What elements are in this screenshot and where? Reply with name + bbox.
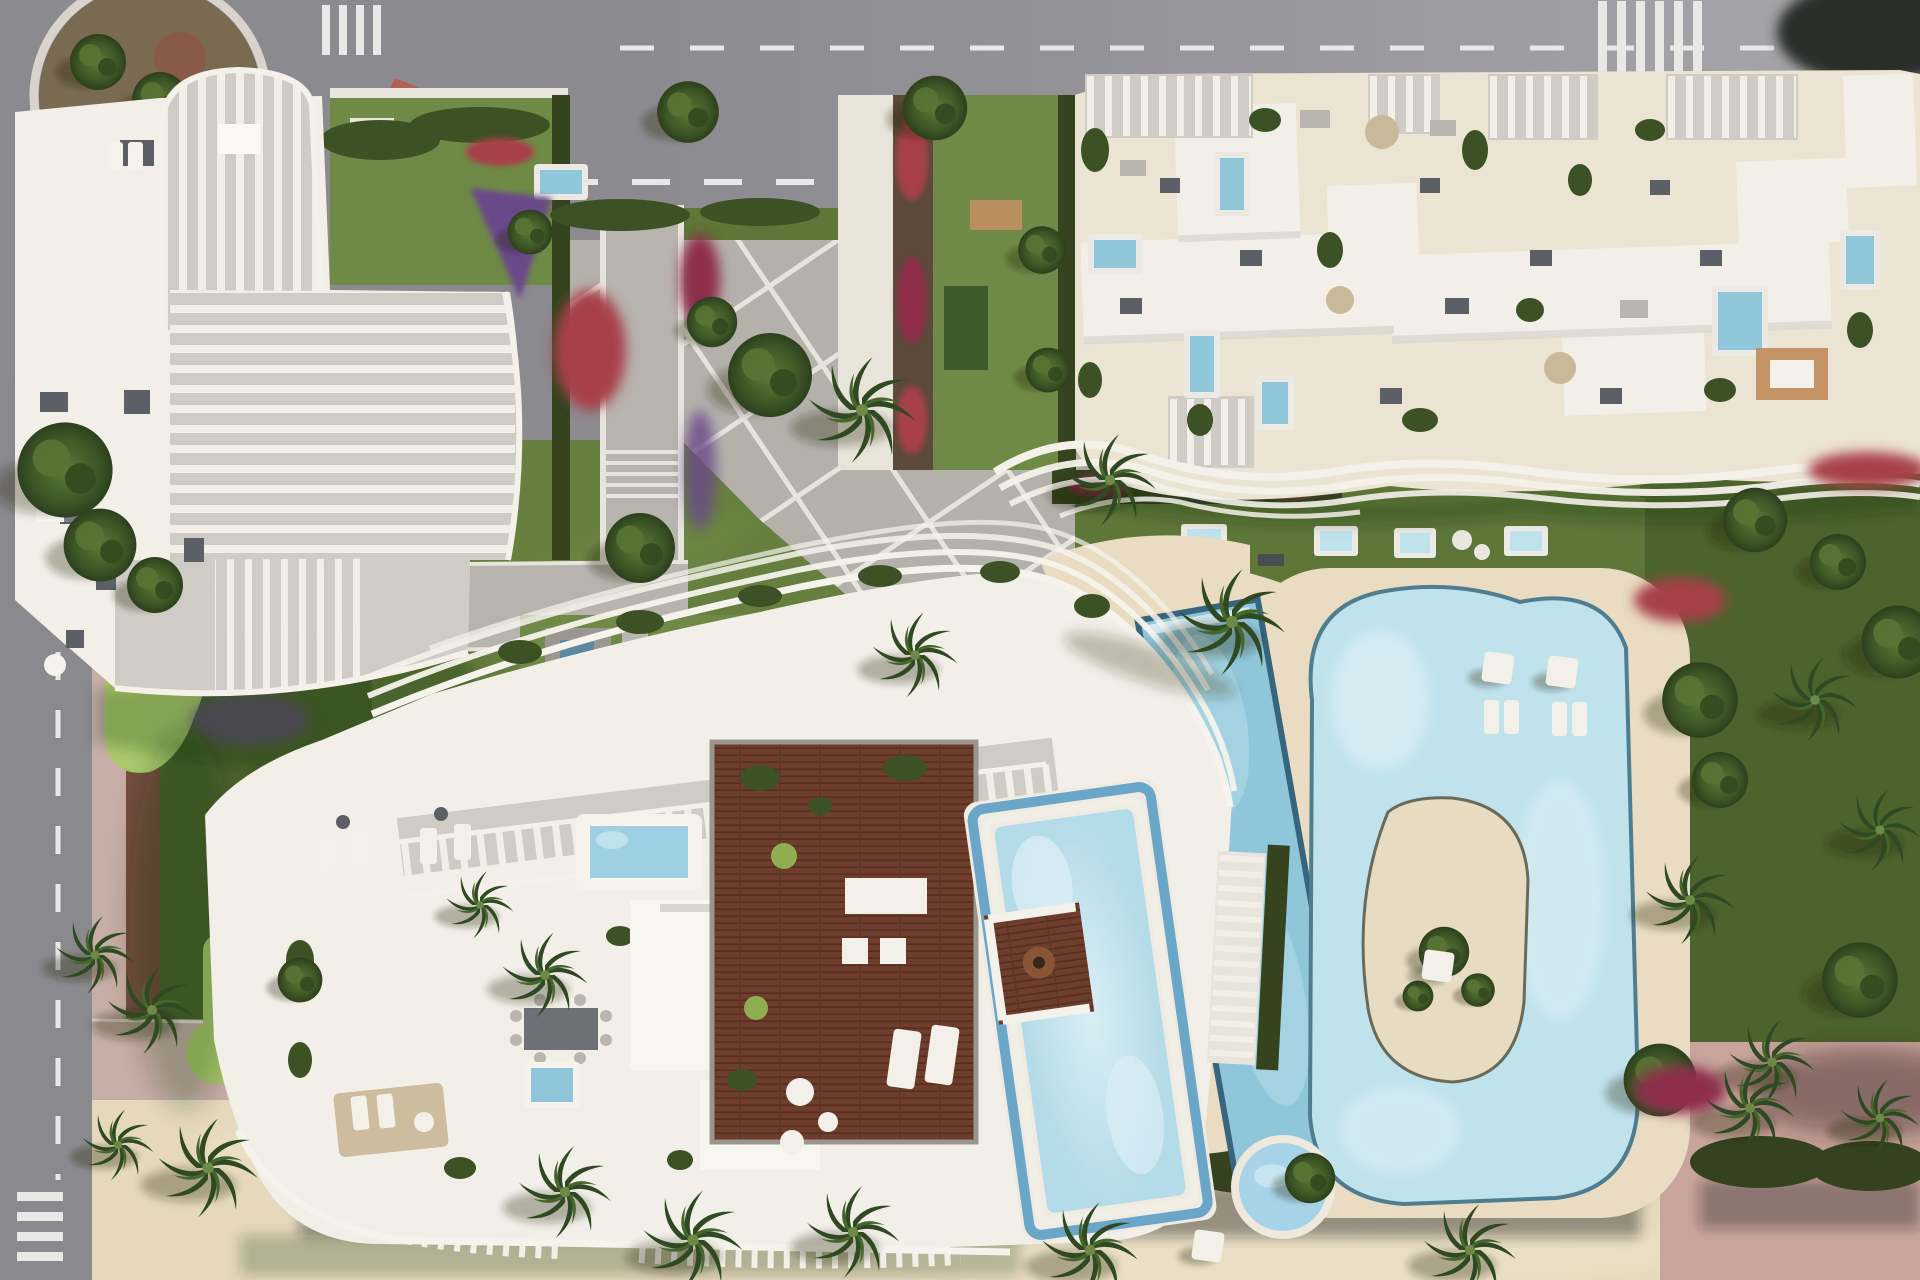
garden-wall	[330, 88, 568, 98]
scene-canvas	[0, 0, 1920, 1280]
b2-mid-pergola	[1168, 396, 1254, 468]
terrace-plunge-pool	[524, 1062, 580, 1108]
red-flower-bed	[1634, 578, 1726, 622]
wooden-roof-deck	[712, 742, 976, 1154]
b1-lawn-pool	[534, 164, 588, 200]
red-flower-bed	[1634, 1066, 1726, 1114]
purple-flower-bed	[684, 410, 716, 530]
red-flower-bed	[466, 138, 534, 166]
aerial-site-render	[0, 0, 1920, 1280]
deck-table	[845, 878, 927, 914]
b3-east-stairs	[1207, 845, 1290, 1071]
dining-table	[524, 1008, 598, 1050]
b1-wing-pergola	[170, 285, 519, 565]
red-flower-bed	[554, 290, 626, 410]
b2-garden-strip	[893, 95, 1076, 470]
